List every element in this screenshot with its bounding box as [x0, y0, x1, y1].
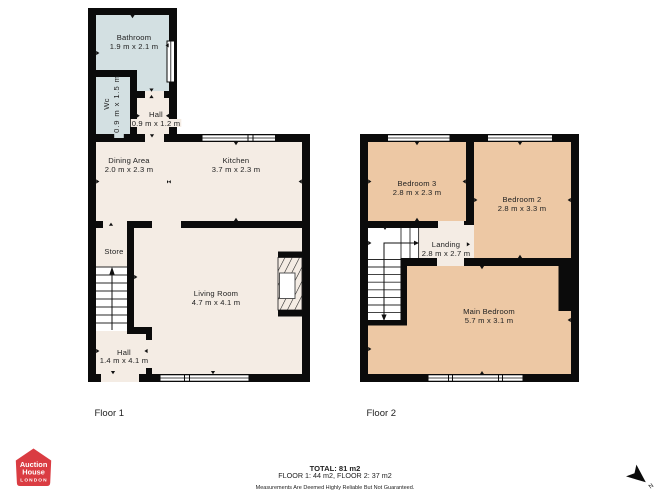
svg-text:0.9 m x 1.5 m: 0.9 m x 1.5 m [112, 75, 121, 133]
svg-text:House: House [22, 467, 45, 476]
svg-text:2.8 m x 2.3 m: 2.8 m x 2.3 m [393, 188, 442, 197]
svg-text:Bedroom 3: Bedroom 3 [398, 179, 437, 188]
svg-text:Wc: Wc [102, 98, 111, 109]
svg-text:Floor 2: Floor 2 [367, 408, 397, 419]
svg-text:2.8 m x 2.7 m: 2.8 m x 2.7 m [422, 249, 471, 258]
svg-text:Floor 1: Floor 1 [95, 408, 125, 419]
svg-text:4.7 m x 4.1 m: 4.7 m x 4.1 m [192, 298, 241, 307]
svg-text:3.7 m x 2.3 m: 3.7 m x 2.3 m [212, 165, 261, 174]
svg-text:2.8 m x 3.3 m: 2.8 m x 3.3 m [498, 204, 547, 213]
svg-text:Bathroom: Bathroom [117, 33, 152, 42]
svg-text:Bedroom 2: Bedroom 2 [503, 195, 542, 204]
svg-text:Kitchen: Kitchen [223, 156, 250, 165]
svg-text:Main Bedroom: Main Bedroom [463, 307, 515, 316]
svg-text:Landing: Landing [432, 240, 460, 249]
svg-text:5.7 m x 3.1 m: 5.7 m x 3.1 m [465, 316, 514, 325]
svg-text:Hall: Hall [149, 110, 163, 119]
svg-text:2.0 m x 2.3 m: 2.0 m x 2.3 m [105, 165, 154, 174]
svg-text:1.4 m x 4.1 m: 1.4 m x 4.1 m [100, 356, 149, 365]
svg-text:Living Room: Living Room [194, 289, 238, 298]
svg-text:Store: Store [104, 247, 123, 256]
svg-text:Dining Area: Dining Area [108, 156, 150, 165]
svg-text:Measurements Are Deemed Highly: Measurements Are Deemed Highly Reliable … [256, 485, 415, 491]
svg-text:FLOOR 1: 44 m2, FLOOR 2: 37 m2: FLOOR 1: 44 m2, FLOOR 2: 37 m2 [278, 471, 391, 480]
svg-text:0.9 m x 1.2 m: 0.9 m x 1.2 m [132, 119, 181, 128]
svg-text:LONDON: LONDON [20, 478, 47, 484]
svg-text:1.9 m x 2.1 m: 1.9 m x 2.1 m [110, 42, 159, 51]
